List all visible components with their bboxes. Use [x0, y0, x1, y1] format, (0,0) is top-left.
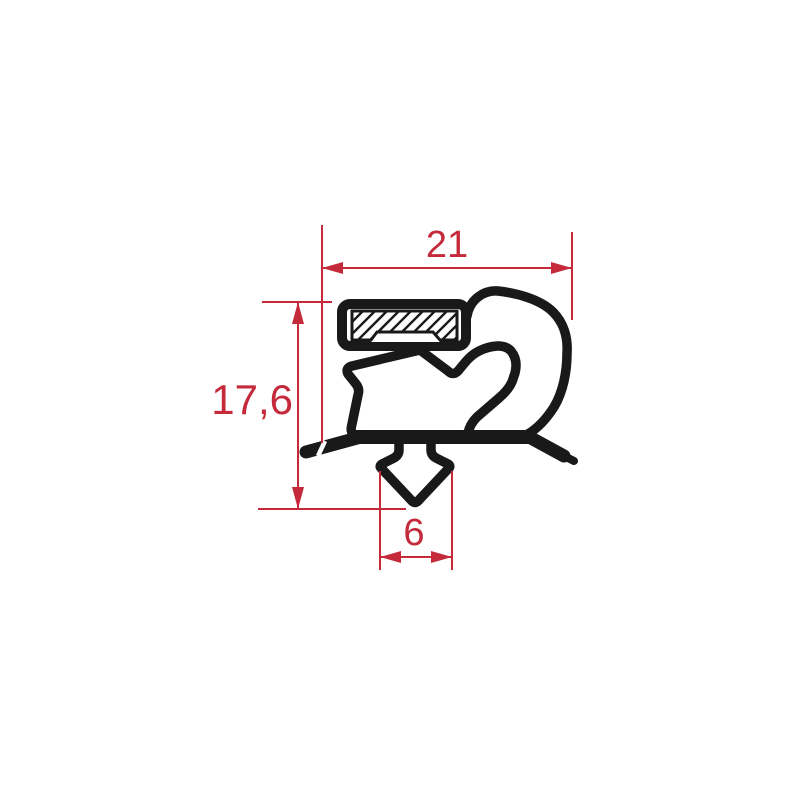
technical-drawing-page: 21 17,6 6 [0, 0, 800, 800]
gasket-profile-drawing: 21 17,6 6 [0, 0, 800, 800]
dart-anchor-right [418, 444, 450, 501]
dimension-dart-label: 6 [403, 512, 424, 554]
right-wing [531, 438, 564, 456]
dart-anchor-tip [412, 501, 418, 503]
dart-anchor-left [380, 444, 412, 501]
left-wing [306, 437, 361, 452]
seal-fold-right [420, 346, 516, 433]
dimension-height-label: 17,6 [211, 376, 293, 423]
arrowhead-right [431, 551, 452, 563]
right-wing-foot [564, 456, 574, 461]
dimension-width-label: 21 [426, 224, 468, 266]
arrowhead-up [292, 302, 304, 324]
gasket-profile [306, 291, 574, 503]
arrowhead-left [322, 262, 343, 274]
arrowhead-right [551, 262, 572, 274]
arrowhead-left [380, 551, 401, 563]
dimension-dart: 6 [380, 471, 452, 570]
seal-fold-left [347, 350, 420, 434]
arrowhead-down [292, 487, 304, 509]
